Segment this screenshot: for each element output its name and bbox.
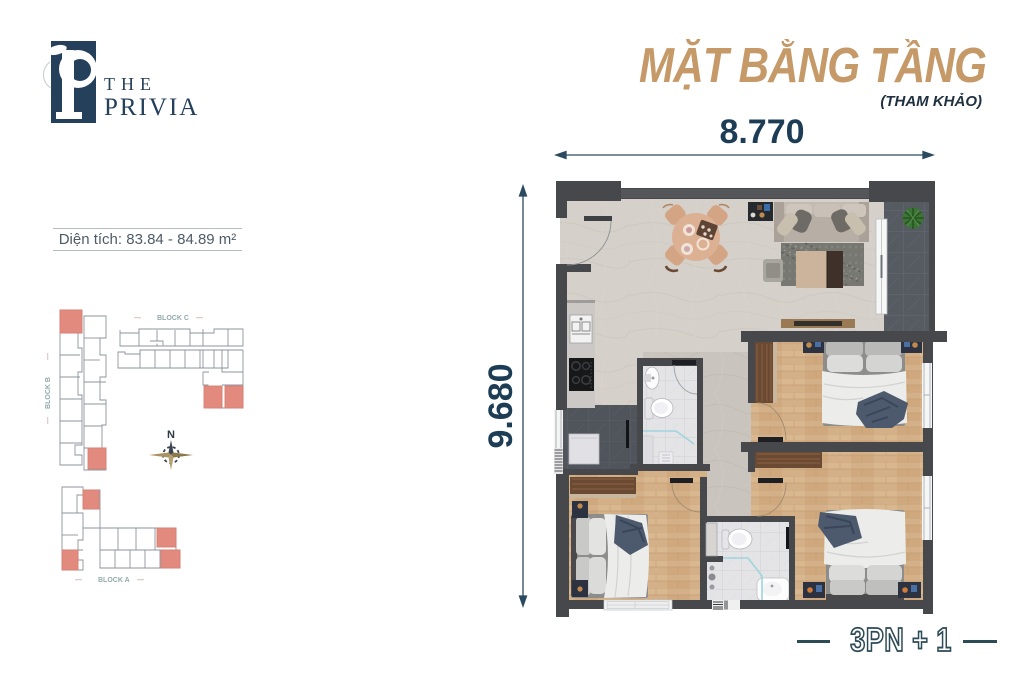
svg-text:8.770: 8.770: [719, 113, 804, 151]
svg-text:9.680: 9.680: [482, 363, 520, 448]
svg-text:—: —: [137, 577, 144, 584]
svg-text:—: —: [134, 315, 141, 322]
svg-text:BLOCK C: BLOCK C: [157, 315, 189, 322]
svg-text:BLOCK B: BLOCK B: [45, 377, 52, 409]
svg-text:—: —: [75, 577, 82, 584]
svg-text:BLOCK A: BLOCK A: [98, 577, 130, 584]
svg-text:—: —: [45, 417, 52, 424]
svg-text:—: —: [196, 315, 203, 322]
svg-text:N: N: [167, 429, 175, 441]
svg-text:—: —: [45, 353, 52, 360]
